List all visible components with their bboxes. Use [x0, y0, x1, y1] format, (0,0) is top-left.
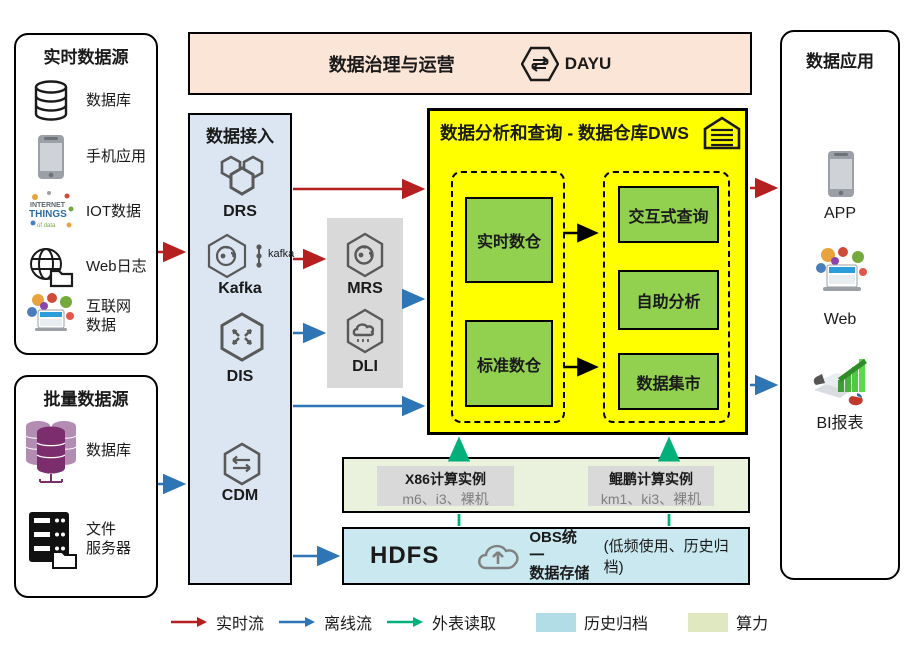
application-label: BI报表: [782, 414, 898, 434]
obs-cloud-icon: [475, 539, 521, 573]
file-server-icon: [24, 509, 78, 571]
batch-sources-title: 批量数据源: [16, 385, 156, 410]
applications-box: 数据应用 APP Web: [780, 30, 900, 580]
hdfs-label: HDFS: [370, 542, 439, 570]
realtime-flow-arrow-icon: [170, 615, 208, 629]
dws-title: 数据分析和查询 - 数据仓库DWS: [440, 120, 689, 145]
ingestion-label: DIS: [190, 368, 290, 386]
application-label: APP: [782, 204, 898, 224]
source-label: Web日志: [86, 258, 147, 277]
legend-label: 实时流: [216, 610, 264, 634]
storage-bar: HDFS OBS统一 数据存储 (低频使用、历史归档): [342, 527, 750, 585]
legend-item: 实时流: [170, 610, 264, 634]
dws-node: 标准数仓: [465, 320, 553, 407]
dws-node: 实时数仓: [465, 197, 553, 283]
archive-swatch: [536, 613, 576, 632]
ingestion-label: DRS: [190, 203, 290, 221]
dis-hexagon-icon: [216, 311, 268, 367]
compute-instance-title: X86计算实例: [377, 469, 514, 489]
governance-title: 数据治理与运营: [329, 51, 455, 77]
legend-label: 算力: [736, 610, 768, 634]
internet-collage-icon: [24, 293, 78, 341]
web-log-icon: [24, 243, 78, 291]
realtime-sources-title: 实时数据源: [16, 43, 156, 68]
offline-flow-arrow-icon: [278, 615, 316, 629]
dws-warehouse-group: 实时数仓 标准数仓: [451, 171, 565, 423]
bi-report-icon: [812, 352, 872, 406]
compute-instance-chip: X86计算实例 m6、i3、裸机: [377, 466, 514, 506]
app-phone-icon: [826, 150, 856, 198]
compute-instance-subtitle: m6、i3、裸机: [377, 489, 514, 509]
processing-box: MRS DLI: [327, 218, 403, 388]
source-label: IOT数据: [86, 203, 141, 222]
batch-sources-box: 批量数据源 数据库: [14, 375, 158, 598]
application-label: Web: [782, 310, 898, 330]
list-item: Web日志: [24, 243, 147, 291]
legend: 实时流 离线流 外表读取 历史归档 算力: [170, 610, 768, 634]
list-item: INTERNET THINGS of data IOT数据: [24, 188, 141, 236]
compute-swatch: [688, 613, 728, 632]
warehouse-icon: [702, 115, 742, 151]
dayu-icon: [521, 44, 559, 84]
source-label: 手机应用: [86, 148, 146, 167]
source-label: 互联网 数据: [86, 298, 131, 336]
dws-node: 自助分析: [618, 270, 719, 330]
list-item: 数据库: [24, 77, 131, 125]
processing-label: DLI: [327, 358, 403, 376]
dws-node: 交互式查询: [618, 186, 719, 243]
svg-text:of data: of data: [37, 223, 56, 229]
mobile-phone-icon: [24, 133, 78, 181]
ingestion-label: CDM: [190, 487, 290, 505]
source-label: 文件 服务器: [86, 521, 131, 559]
legend-item: 离线流: [278, 610, 372, 634]
governance-product: DAYU: [565, 54, 612, 74]
governance-banner: 数据治理与运营 DAYU: [188, 32, 752, 95]
ingestion-label: Kafka: [190, 280, 290, 298]
legend-item: 历史归档: [536, 610, 648, 634]
legend-label: 外表读取: [432, 610, 496, 634]
compute-bar: X86计算实例 m6、i3、裸机 鲲鹏计算实例 km1、ki3、裸机: [342, 457, 750, 513]
list-item: 数据库: [24, 415, 131, 487]
list-item: 文件 服务器: [24, 509, 131, 571]
svg-text:INTERNET: INTERNET: [30, 202, 66, 209]
architecture-diagram: 实时数据源 数据库 手机应用: [0, 0, 914, 651]
applications-title: 数据应用: [782, 47, 898, 72]
kafka-logo-text: kafka: [268, 248, 294, 260]
processing-label: MRS: [327, 280, 403, 298]
dli-hexagon-icon: [343, 308, 387, 356]
purple-database-icon: [24, 415, 78, 487]
foreign-read-arrow-icon: [386, 615, 424, 629]
legend-label: 历史归档: [584, 610, 648, 634]
legend-item: 算力: [688, 610, 768, 634]
list-item: 手机应用: [24, 133, 146, 181]
legend-item: 外表读取: [386, 610, 496, 634]
mrs-hexagon-icon: [343, 232, 387, 280]
legend-label: 离线流: [324, 610, 372, 634]
source-label: 数据库: [86, 92, 131, 111]
ingestion-title: 数据接入: [190, 122, 290, 147]
iot-wordcloud-icon: INTERNET THINGS of data: [24, 188, 78, 236]
compute-instance-title: 鲲鹏计算实例: [588, 469, 714, 489]
list-item: 互联网 数据: [24, 293, 131, 341]
storage-note: (低频使用、历史归档): [604, 535, 748, 577]
svg-text:THINGS: THINGS: [29, 209, 67, 220]
compute-instance-chip: 鲲鹏计算实例 km1、ki3、裸机: [588, 466, 714, 506]
drs-hexagon-icon: [217, 151, 267, 203]
dws-node: 数据集市: [618, 353, 719, 410]
ingestion-column: 数据接入 DRS kafka Kafka: [188, 113, 292, 585]
compute-instance-subtitle: km1、ki3、裸机: [588, 489, 714, 509]
dws-box: 数据分析和查询 - 数据仓库DWS 实时数仓 标准数仓 交互式查询 自助分析 数…: [427, 108, 748, 435]
database-icon: [24, 77, 78, 125]
kafka-logo-icon: [252, 243, 266, 269]
source-label: 数据库: [86, 442, 131, 461]
realtime-sources-box: 实时数据源 数据库 手机应用: [14, 33, 158, 355]
web-collage-icon: [815, 246, 869, 304]
cdm-hexagon-icon: [219, 441, 265, 489]
dws-query-group: 交互式查询 自助分析 数据集市: [603, 171, 730, 423]
kafka-hexagon-icon: [204, 233, 250, 279]
obs-label: OBS统一 数据存储: [529, 529, 591, 583]
